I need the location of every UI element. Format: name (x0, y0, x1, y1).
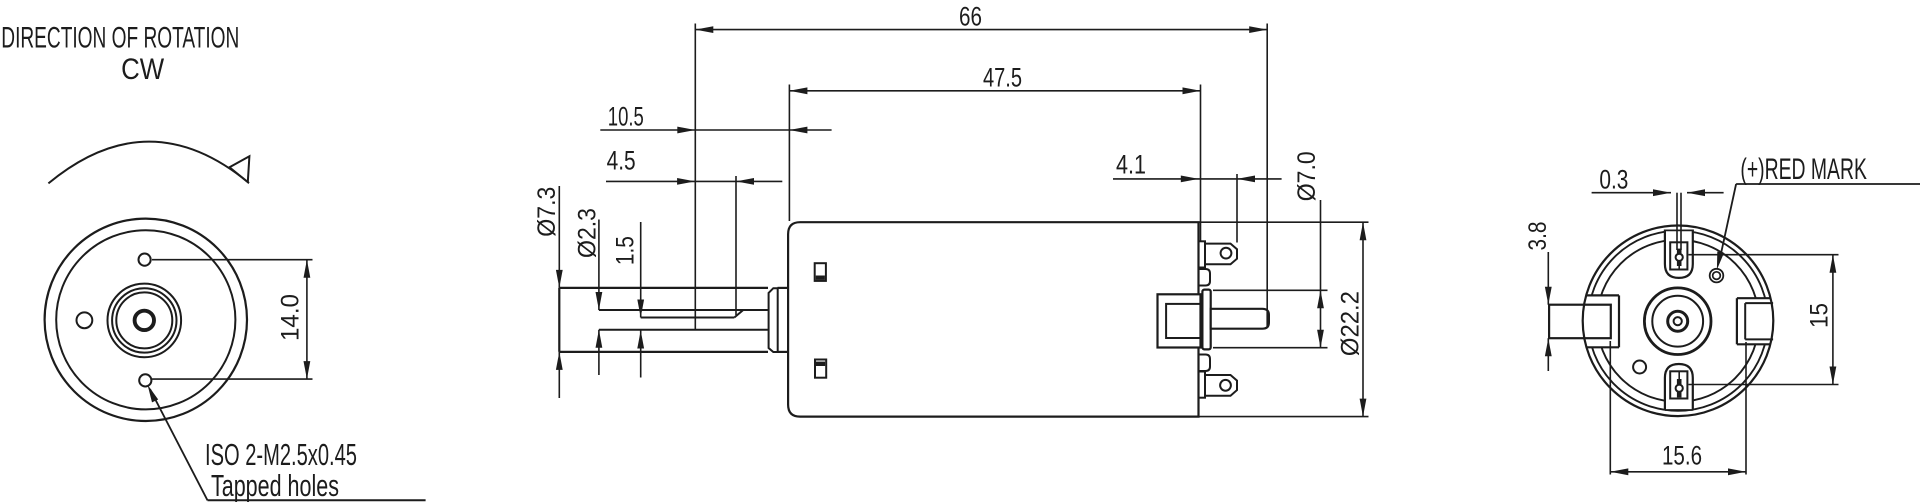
svg-text:DIRECTION OF ROTATION: DIRECTION OF ROTATION (1, 22, 239, 55)
svg-text:66: 66 (959, 2, 982, 32)
svg-text:Tapped holes: Tapped holes (211, 468, 339, 502)
svg-text:(+)RED MARK: (+)RED MARK (1740, 153, 1867, 186)
svg-text:Ø2.3: Ø2.3 (574, 208, 602, 258)
svg-text:1.5: 1.5 (612, 236, 640, 265)
svg-text:10.5: 10.5 (608, 101, 644, 131)
svg-text:15: 15 (1806, 303, 1834, 328)
svg-text:3.8: 3.8 (1524, 222, 1552, 251)
svg-text:ISO 2-M2.5x0.45: ISO 2-M2.5x0.45 (205, 437, 357, 472)
svg-text:Ø7.3: Ø7.3 (533, 187, 561, 237)
svg-text:0.3: 0.3 (1599, 165, 1628, 195)
svg-text:15.6: 15.6 (1662, 441, 1702, 471)
svg-text:47.5: 47.5 (983, 62, 1022, 92)
svg-text:CW: CW (121, 53, 165, 86)
svg-text:4.1: 4.1 (1116, 150, 1146, 180)
svg-text:4.5: 4.5 (607, 145, 636, 175)
svg-text:14.0: 14.0 (277, 294, 305, 341)
svg-text:Ø7.0: Ø7.0 (1293, 151, 1321, 201)
svg-text:Ø22.2: Ø22.2 (1337, 291, 1365, 356)
